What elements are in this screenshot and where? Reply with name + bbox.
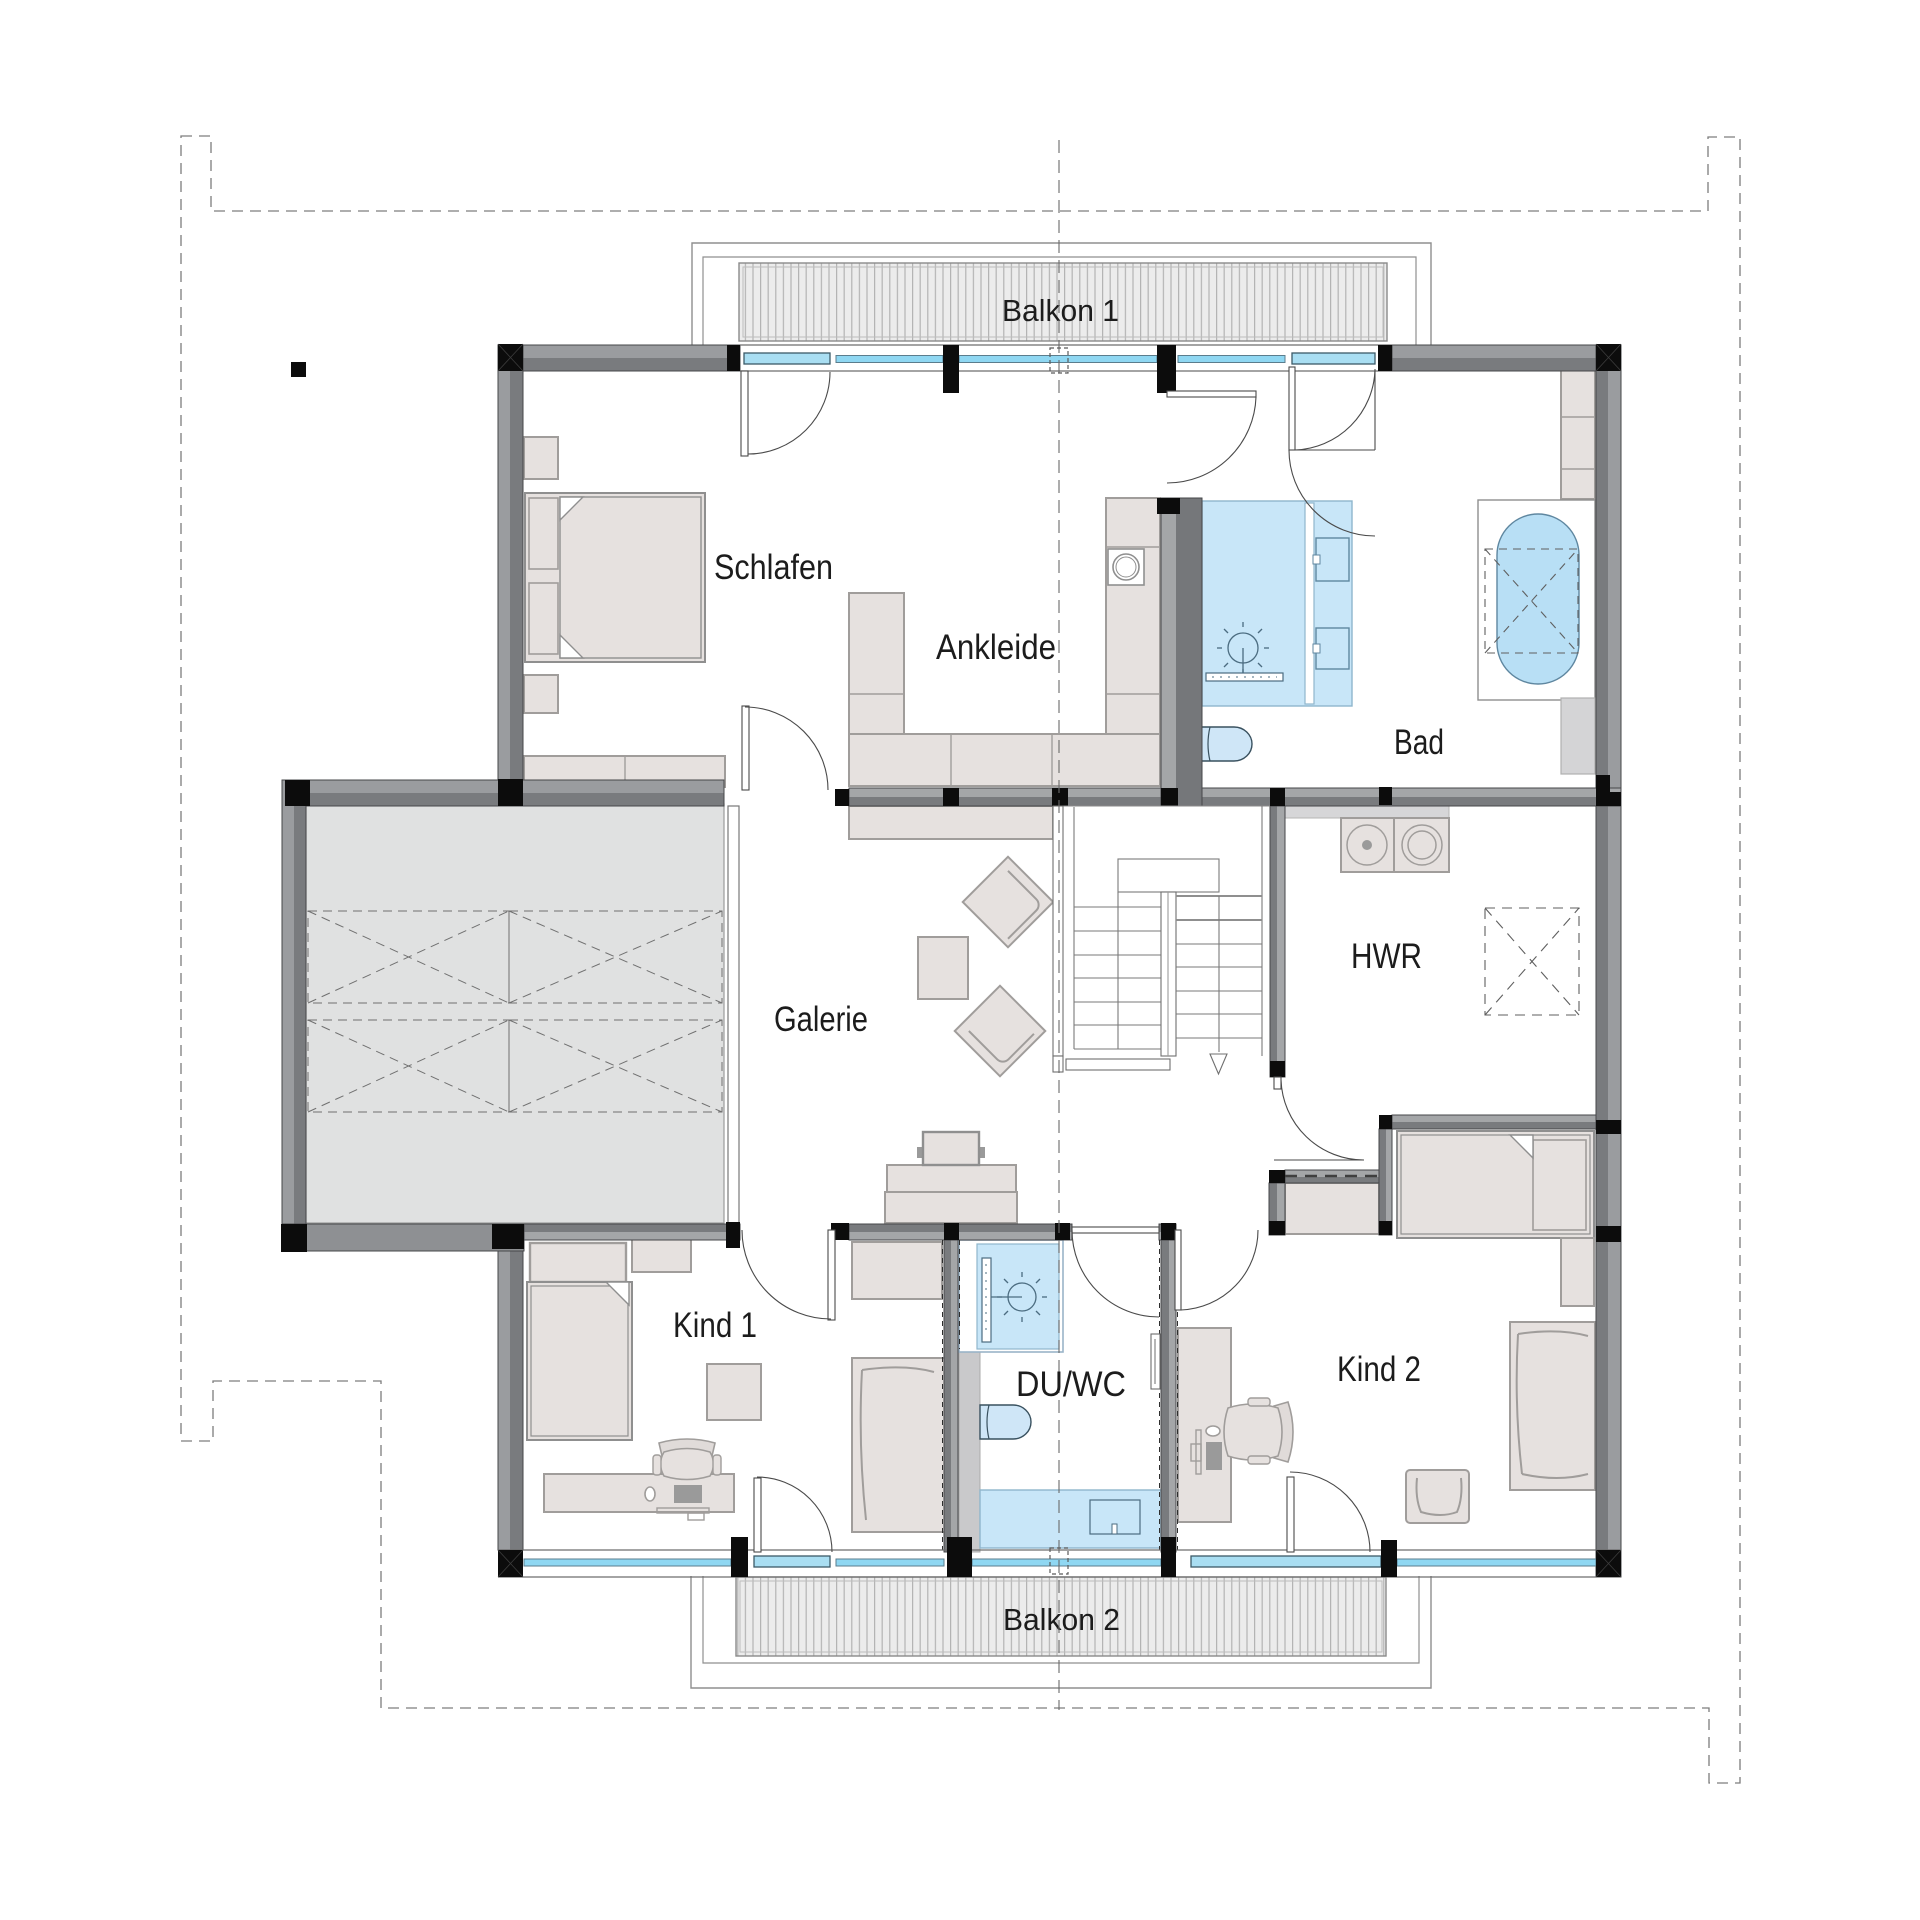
svg-text:Kind 2: Kind 2	[1337, 1350, 1421, 1389]
svg-text:HWR: HWR	[1351, 937, 1422, 976]
svg-text:Kind 1: Kind 1	[673, 1306, 757, 1345]
svg-text:Schlafen: Schlafen	[714, 548, 833, 587]
svg-text:Galerie: Galerie	[774, 1000, 868, 1039]
svg-text:Bad: Bad	[1394, 723, 1444, 762]
svg-text:Ankleide: Ankleide	[936, 628, 1056, 667]
svg-text:Balkon 1: Balkon 1	[1002, 293, 1119, 328]
svg-text:Balkon 2: Balkon 2	[1003, 1602, 1120, 1637]
svg-text:DU/WC: DU/WC	[1016, 1365, 1126, 1404]
